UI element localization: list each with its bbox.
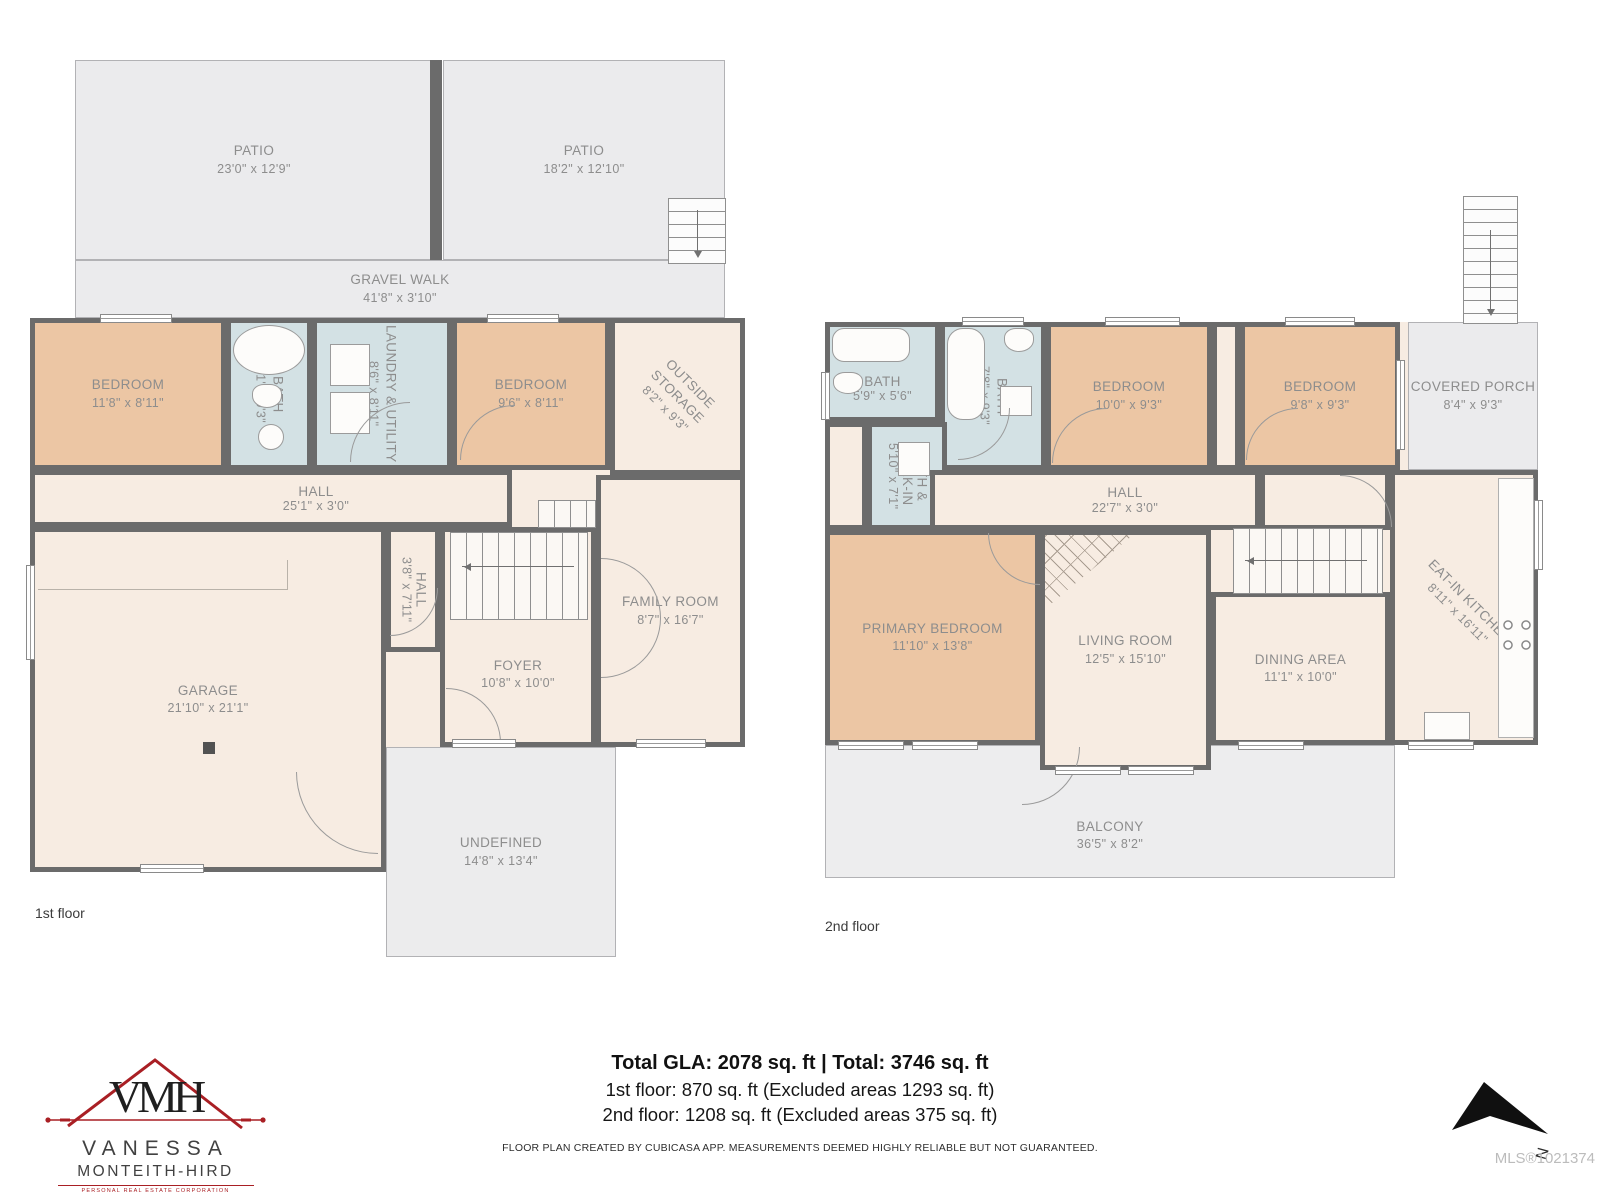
closet-column — [1212, 322, 1240, 470]
window — [1055, 766, 1121, 775]
window — [26, 565, 35, 660]
bathtub — [832, 328, 910, 362]
brand-rule — [58, 1185, 254, 1186]
closet-left-f2 — [825, 422, 867, 530]
summary-floor1: 1st floor: 870 sq. ft (Excluded areas 12… — [400, 1079, 1200, 1101]
kitchen-counter — [1498, 478, 1534, 738]
sink — [258, 424, 284, 450]
room-dims: 10'8" x 10'0" — [481, 675, 555, 692]
area-summary: Total GLA: 2078 sq. ft | Total: 3746 sq.… — [400, 1052, 1200, 1154]
window — [100, 314, 172, 323]
stairs-floor2 — [1233, 528, 1383, 594]
floor1-tag: 1st floor — [35, 905, 85, 921]
room-label: GARAGE — [167, 682, 248, 700]
room-dims: 18'2" x 12'10" — [543, 161, 624, 178]
window — [487, 314, 559, 323]
window — [838, 741, 904, 750]
area-gravel-walk: GRAVEL WALK 41'8" x 3'10" — [75, 260, 725, 318]
room-dims: 12'5" x 15'10" — [1078, 651, 1172, 668]
brand-roof-monogram: VMH — [38, 1046, 273, 1138]
room-hall-f2: HALL 22'7" x 3'0" — [930, 470, 1260, 530]
window — [1285, 317, 1355, 326]
window — [636, 739, 706, 748]
room-dims: 14'8" x 13'4" — [460, 853, 542, 870]
room-label: UNDEFINED — [460, 834, 542, 852]
patio-divider-wall — [430, 60, 442, 260]
brand-monogram: VMH — [109, 1071, 205, 1122]
window — [821, 372, 830, 420]
stairs-down-arrow — [1490, 230, 1491, 314]
garage-post — [203, 742, 215, 754]
stairs-direction-arrow — [462, 566, 574, 567]
room-label: FOYER — [481, 657, 555, 675]
stairs-landing — [538, 500, 596, 528]
room-dims: 11'10" x 13'8" — [862, 638, 1003, 655]
summary-total: Total GLA: 2078 sq. ft | Total: 3746 sq.… — [400, 1052, 1200, 1075]
mls-number: MLS®1021374 — [1495, 1150, 1595, 1167]
stairs-foyer — [450, 532, 588, 620]
room-hall-f1: HALL 25'1" x 3'0" — [30, 470, 512, 527]
window — [140, 864, 204, 873]
window — [962, 317, 1024, 326]
stairs-down-arrow — [697, 210, 698, 256]
room-label: PATIO — [217, 142, 291, 160]
room-label: GRAVEL WALK — [350, 271, 449, 289]
washer — [330, 344, 370, 386]
window — [1238, 741, 1304, 750]
stairs-direction-arrow — [1245, 560, 1367, 561]
room-label: BEDROOM — [92, 376, 165, 394]
room-dims: 21'10" x 21'1" — [167, 700, 248, 717]
room-dims: 22'7" x 3'0" — [1092, 501, 1158, 515]
stove-icon — [1499, 615, 1535, 657]
room-outside-storage: OUTSIDE STORAGE 8'2" x 9'3" — [610, 318, 745, 475]
room-label: BEDROOM — [495, 376, 568, 394]
room-label: LIVING ROOM — [1078, 632, 1172, 650]
window — [1105, 317, 1180, 326]
room-label: PRIMARY BEDROOM — [862, 620, 1003, 638]
room-label: PATIO — [543, 142, 624, 160]
window — [1534, 500, 1543, 570]
room-dims: 23'0" x 12'9" — [217, 161, 291, 178]
room-dims: 8'4" x 9'3" — [1411, 397, 1535, 414]
bathtub — [233, 325, 305, 375]
room-label: BEDROOM — [1093, 378, 1166, 396]
room-dims: 5'10" x 7'1" — [885, 427, 899, 525]
brand-name-line1: VANESSA — [38, 1137, 273, 1161]
garage-storage-line — [38, 560, 288, 590]
floorplan-sheet: PATIO 23'0" x 12'9" PATIO 18'2" x 12'10"… — [0, 0, 1600, 1200]
brand-tagline: PERSONAL REAL ESTATE CORPORATION — [38, 1188, 273, 1194]
brand-name-line2: MONTEITH-HIRD — [38, 1163, 273, 1181]
room-dims: 25'1" x 3'0" — [283, 499, 349, 513]
disclaimer: FLOOR PLAN CREATED BY CUBICASA APP. MEAS… — [400, 1142, 1200, 1154]
toilet — [252, 384, 282, 408]
room-label: HALL — [283, 484, 349, 500]
room-dims: 36'5" x 8'2" — [1076, 836, 1143, 853]
toilet — [1004, 328, 1034, 352]
room-dims: 41'8" x 3'10" — [350, 290, 449, 307]
kitchen-sink — [1424, 712, 1470, 740]
room-bedroom-left-f1: BEDROOM 11'8" x 8'11" — [30, 318, 226, 470]
room-dims: 5'9" x 5'6" — [853, 390, 912, 404]
window — [452, 739, 516, 748]
brand-logo: VMH VANESSA MONTEITH-HIRD PERSONAL REAL … — [38, 1046, 273, 1194]
room-label: HALL — [1092, 485, 1158, 501]
room-label: DINING AREA — [1255, 651, 1346, 669]
summary-floor2: 2nd floor: 1208 sq. ft (Excluded areas 3… — [400, 1104, 1200, 1126]
area-undefined: UNDEFINED 14'8" x 13'4" — [386, 747, 616, 957]
area-covered-porch: COVERED PORCH 8'4" x 9'3" — [1408, 322, 1538, 470]
floor2-tag: 2nd floor — [825, 918, 879, 934]
window — [1408, 741, 1474, 750]
bathtub — [947, 328, 985, 420]
room-label: BEDROOM — [1284, 378, 1357, 396]
room-dims: 11'1" x 10'0" — [1255, 669, 1346, 686]
area-patio-left: PATIO 23'0" x 12'9" — [75, 60, 433, 260]
window — [912, 741, 978, 750]
vanity-sink — [898, 442, 930, 476]
room-label: BALCONY — [1076, 818, 1143, 836]
room-dims: 11'8" x 8'11" — [92, 395, 165, 412]
room-label: COVERED PORCH — [1411, 378, 1535, 396]
room-dining-area: DINING AREA 11'1" x 10'0" — [1211, 592, 1390, 745]
toilet — [833, 372, 863, 394]
window — [1128, 766, 1194, 775]
window — [1396, 360, 1405, 450]
